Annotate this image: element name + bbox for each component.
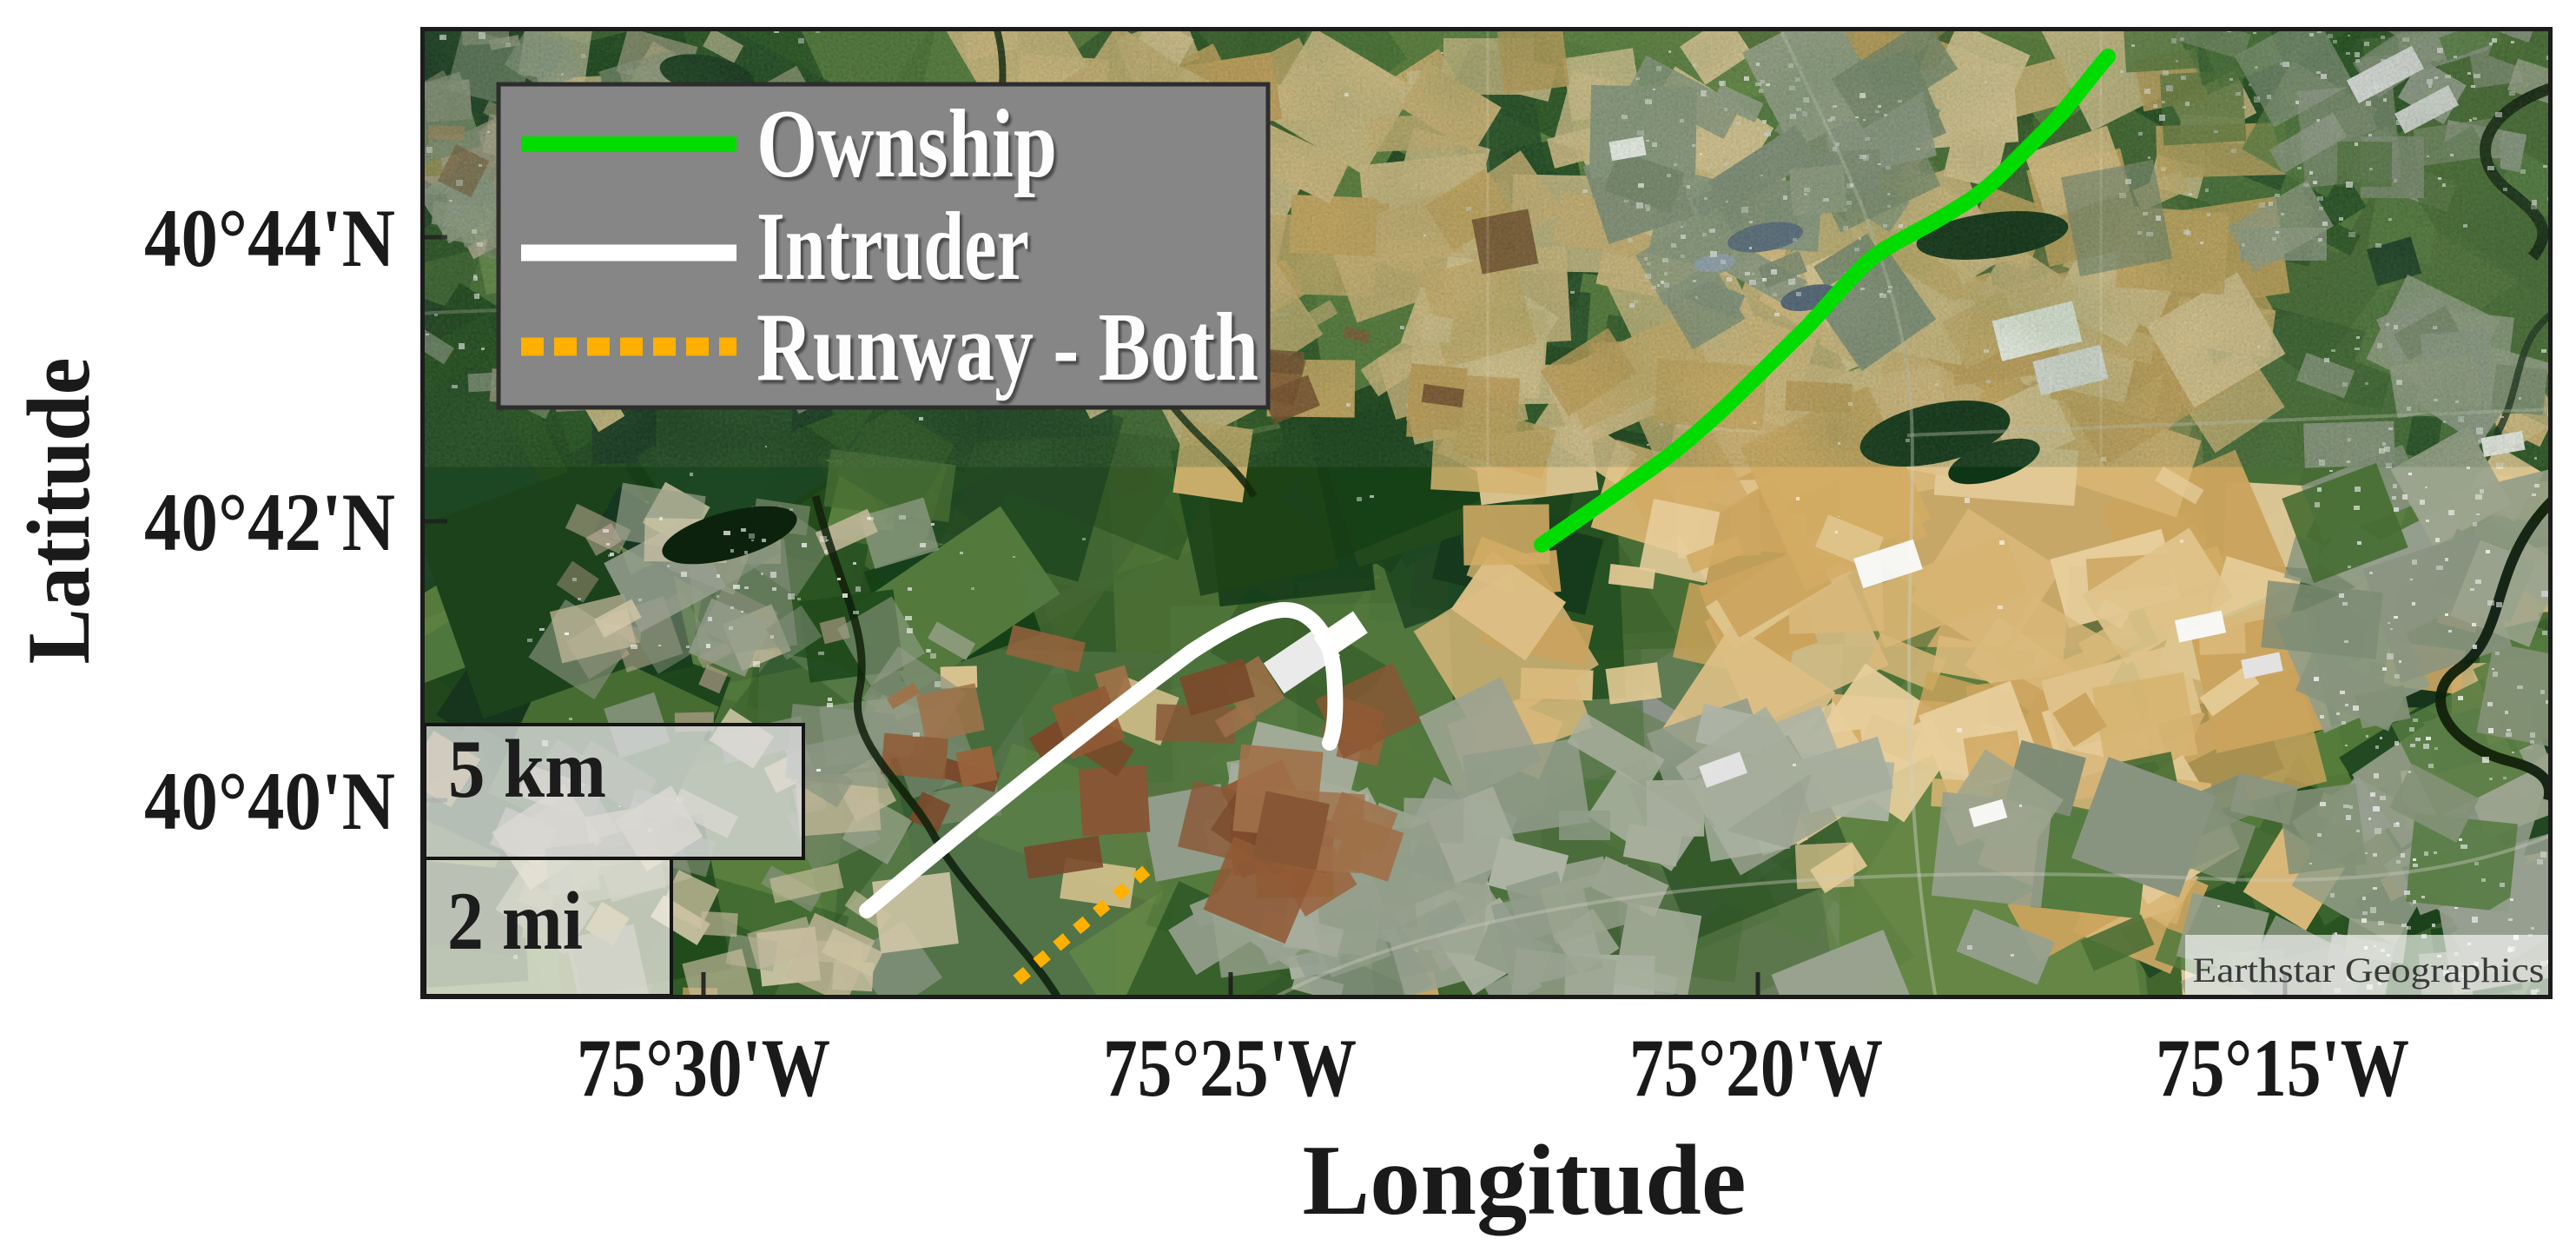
- svg-text:40°42'N: 40°42'N: [144, 476, 395, 568]
- svg-text:5 km: 5 km: [448, 723, 606, 815]
- svg-text:75°25'W: 75°25'W: [1103, 1022, 1357, 1114]
- svg-text:Longitude: Longitude: [1303, 1125, 1747, 1236]
- svg-text:40°40'N: 40°40'N: [144, 755, 395, 847]
- svg-text:40°44'N: 40°44'N: [144, 192, 395, 284]
- svg-text:Earthstar Geographics: Earthstar Geographics: [2193, 950, 2545, 990]
- svg-text:75°30'W: 75°30'W: [577, 1022, 830, 1114]
- svg-text:75°20'W: 75°20'W: [1629, 1022, 1883, 1114]
- svg-text:Latitude: Latitude: [10, 358, 109, 665]
- svg-text:2 mi: 2 mi: [447, 875, 583, 967]
- svg-text:Runway - Both: Runway - Both: [756, 294, 1258, 401]
- svg-text:75°15'W: 75°15'W: [2156, 1022, 2409, 1114]
- svg-text:Intruder: Intruder: [756, 193, 1029, 301]
- svg-text:Ownship: Ownship: [756, 90, 1057, 198]
